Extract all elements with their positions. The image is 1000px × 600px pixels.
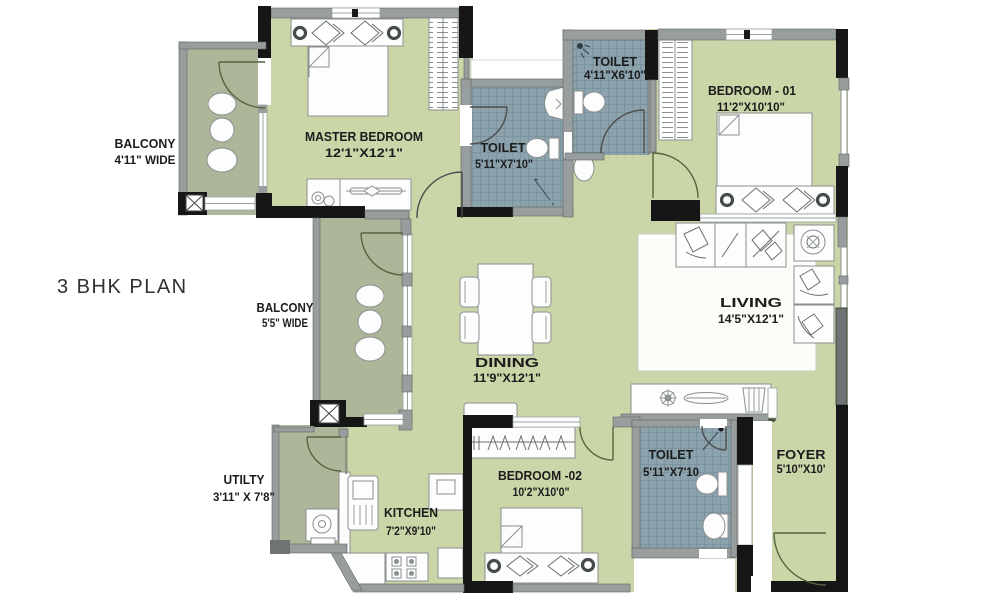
- svg-text:3'11" X 7'8": 3'11" X 7'8": [213, 490, 275, 504]
- svg-text:BALCONY: BALCONY: [257, 300, 314, 315]
- svg-text:TOILET: TOILET: [481, 140, 526, 155]
- svg-text:5'5" WIDE: 5'5" WIDE: [262, 316, 308, 330]
- svg-text:10'2"X10'0": 10'2"X10'0": [513, 485, 570, 499]
- svg-text:5'11"X7'10": 5'11"X7'10": [475, 157, 533, 171]
- svg-text:BEDROOM -02: BEDROOM -02: [498, 468, 582, 483]
- svg-text:BALCONY: BALCONY: [115, 136, 176, 151]
- svg-text:KITCHEN: KITCHEN: [384, 505, 438, 520]
- svg-text:4'11" WIDE: 4'11" WIDE: [115, 153, 176, 167]
- svg-text:LIVING: LIVING: [720, 295, 782, 310]
- svg-text:FOYER: FOYER: [777, 447, 827, 462]
- svg-text:11'9"X12'1": 11'9"X12'1": [473, 371, 541, 385]
- svg-text:DINING: DINING: [475, 355, 539, 370]
- svg-text:5'10"X10': 5'10"X10': [777, 462, 826, 476]
- svg-text:BEDROOM - 01: BEDROOM - 01: [708, 83, 796, 98]
- svg-text:3 BHK PLAN: 3 BHK PLAN: [57, 276, 188, 298]
- svg-text:MASTER BEDROOM: MASTER BEDROOM: [305, 129, 423, 144]
- svg-text:5'11"X7'10: 5'11"X7'10: [643, 465, 699, 479]
- svg-text:UTILTY: UTILTY: [224, 472, 265, 487]
- svg-text:TOILET: TOILET: [649, 447, 694, 462]
- svg-text:7'2"X9'10": 7'2"X9'10": [386, 524, 436, 538]
- svg-text:4'11"X6'10": 4'11"X6'10": [584, 68, 646, 82]
- svg-text:14'5"X12'1": 14'5"X12'1": [718, 312, 784, 326]
- svg-text:11'2"X10'10": 11'2"X10'10": [717, 100, 785, 114]
- svg-text:TOILET: TOILET: [593, 54, 637, 69]
- svg-text:12'1"X12'1": 12'1"X12'1": [325, 146, 403, 160]
